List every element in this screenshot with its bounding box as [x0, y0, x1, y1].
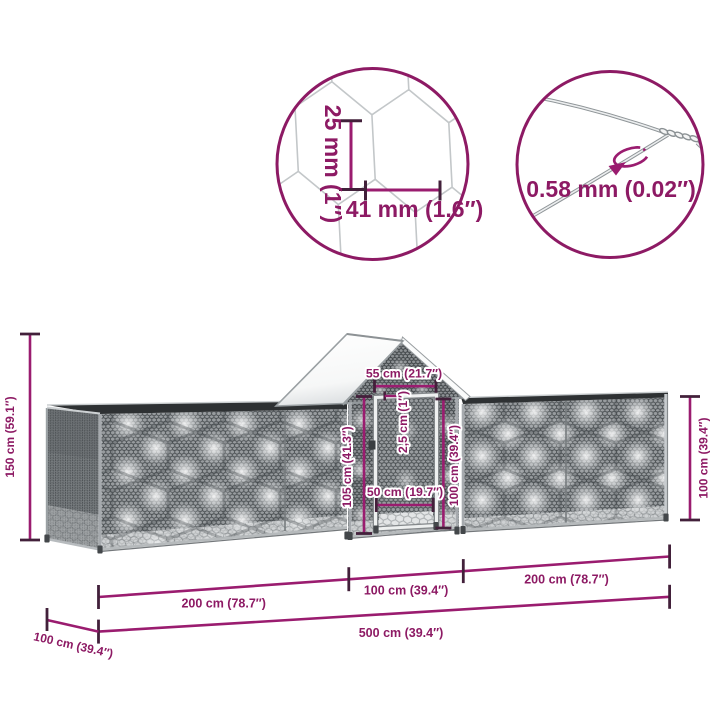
- svg-text:25 mm (1″): 25 mm (1″): [320, 105, 346, 223]
- svg-text:50 cm (19.7″): 50 cm (19.7″): [367, 485, 443, 499]
- svg-text:100 cm (39.4″): 100 cm (39.4″): [697, 417, 711, 498]
- svg-text:100 cm (39.4″): 100 cm (39.4″): [364, 584, 449, 598]
- svg-text:0.58 mm (0.02″): 0.58 mm (0.02″): [526, 176, 696, 202]
- svg-text:55 cm (21.7″): 55 cm (21.7″): [366, 367, 442, 381]
- svg-text:41 mm (1.6″): 41 mm (1.6″): [346, 196, 484, 222]
- svg-text:200 cm (78.7″): 200 cm (78.7″): [181, 597, 266, 611]
- svg-text:500 cm (39.4″): 500 cm (39.4″): [359, 626, 444, 640]
- svg-text:200 cm (78.7″): 200 cm (78.7″): [524, 572, 609, 586]
- svg-text:105 cm (41.3″): 105 cm (41.3″): [340, 426, 354, 507]
- svg-text:150 cm (59.1″): 150 cm (59.1″): [3, 396, 17, 477]
- svg-text:2,5 cm (1″): 2,5 cm (1″): [396, 391, 410, 453]
- svg-text:100 cm (39.4″): 100 cm (39.4″): [447, 425, 461, 506]
